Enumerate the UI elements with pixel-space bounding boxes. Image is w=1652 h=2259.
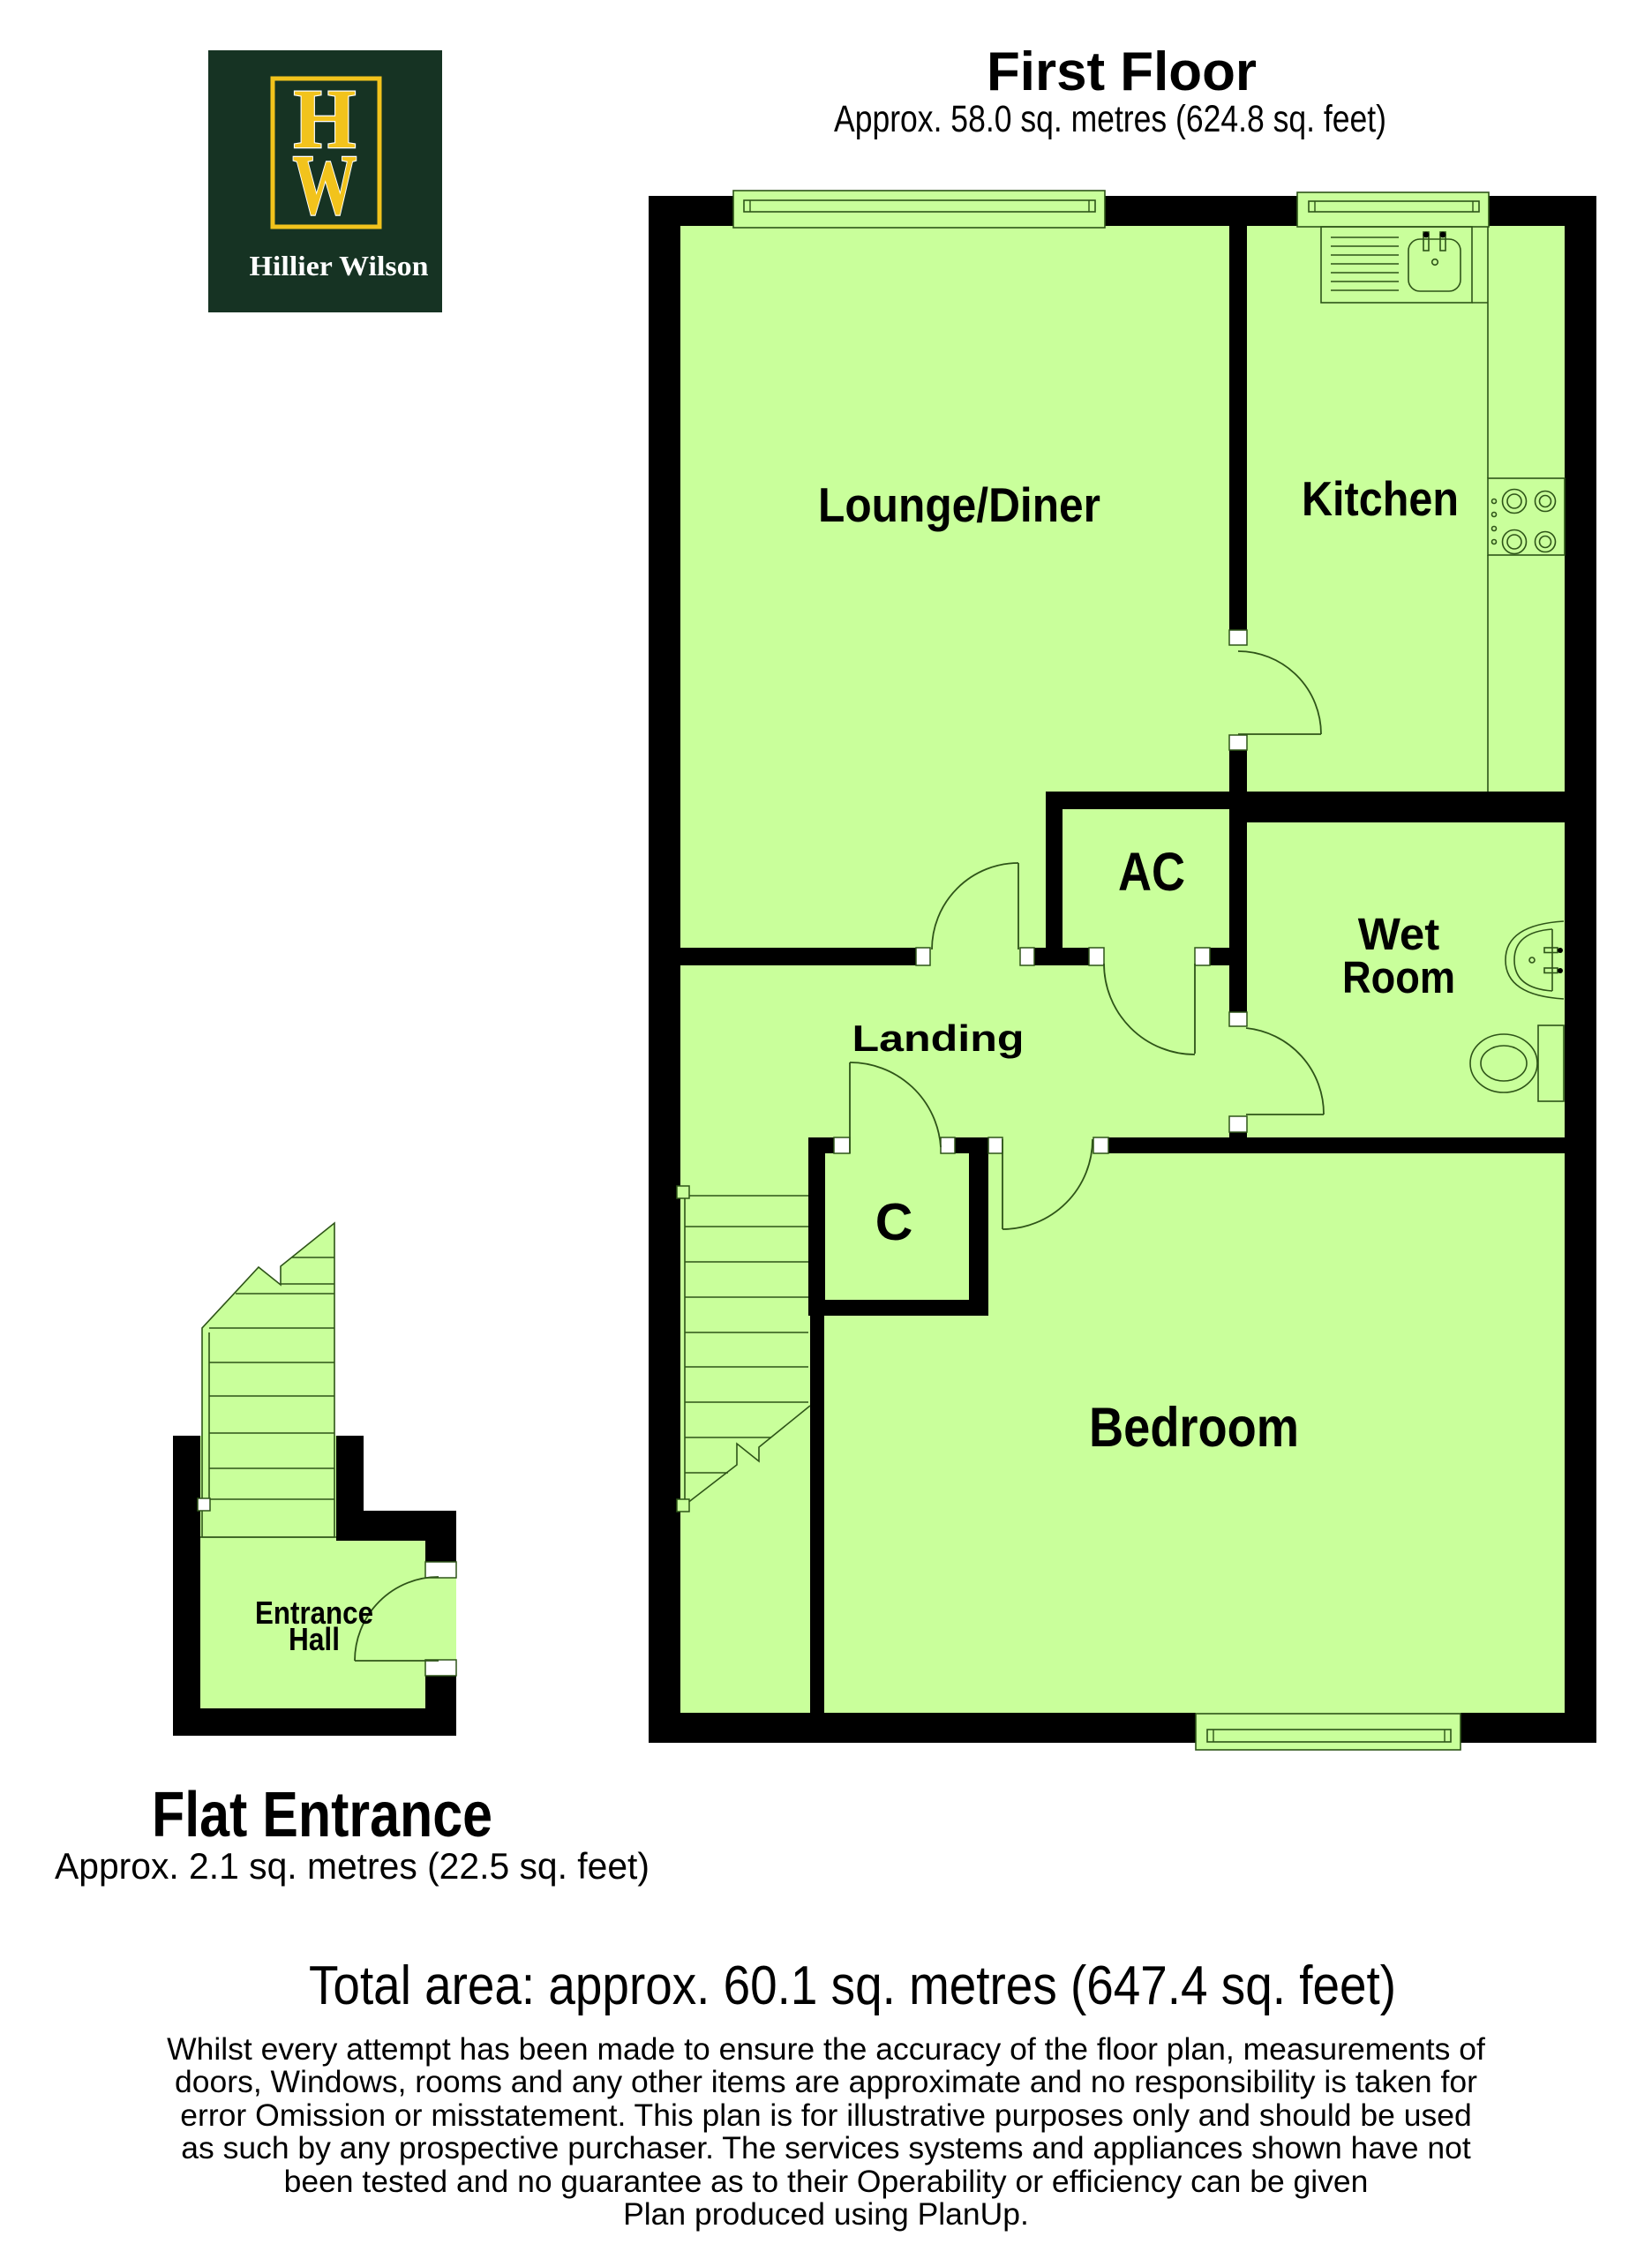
svg-text:Bedroom: Bedroom [1089,1397,1299,1459]
svg-text:First Floor: First Floor [987,41,1257,102]
svg-text:doors, Windows, rooms and any: doors, Windows, rooms and any other item… [175,2064,1477,2099]
svg-text:Kitchen: Kitchen [1302,471,1459,526]
svg-text:Flat Entrance: Flat Entrance [152,1780,492,1850]
svg-text:W: W [293,138,357,232]
svg-text:Hall: Hall [289,1621,340,1657]
svg-text:Plan produced using PlanUp.: Plan produced using PlanUp. [623,2196,1029,2232]
svg-text:as such by any prospective pur: as such by any prospective purchaser. Th… [181,2130,1471,2165]
svg-text:Whilst every attempt has been: Whilst every attempt has been made to en… [167,2031,1485,2067]
svg-text:Landing: Landing [852,1017,1025,1059]
svg-text:C: C [875,1193,913,1251]
svg-text:Approx. 2.1 sq. metres (22.5 s: Approx. 2.1 sq. metres (22.5 sq. feet) [55,1845,650,1887]
svg-text:Approx. 58.0 sq. metres (624.8: Approx. 58.0 sq. metres (624.8 sq. feet) [834,98,1386,140]
svg-text:error Omission or misstatement: error Omission or misstatement. This pla… [180,2098,1471,2133]
svg-text:AC: AC [1118,842,1185,902]
svg-text:been tested and no guarantee a: been tested and no guarantee as to their… [284,2164,1369,2199]
svg-text:Lounge/Diner: Lounge/Diner [818,477,1100,532]
svg-text:Total area: approx. 60.1 sq. m: Total area: approx. 60.1 sq. metres (647… [309,1955,1396,2016]
svg-text:Hillier Wilson: Hillier Wilson [250,251,430,281]
svg-text:Room: Room [1342,952,1455,1002]
